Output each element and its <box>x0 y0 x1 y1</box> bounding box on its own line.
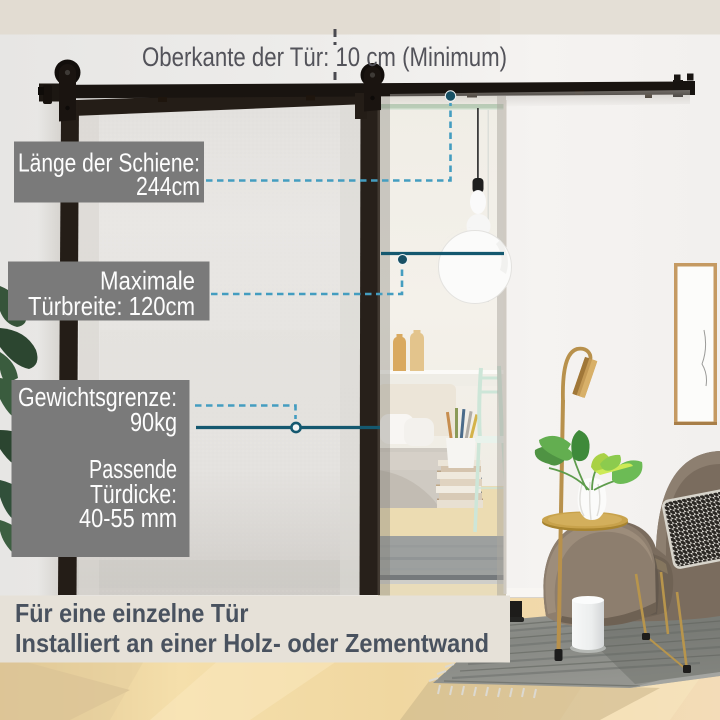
svg-text:90kg: 90kg <box>130 409 177 437</box>
svg-text:Oberkante der Tür: 10 cm (Mini: Oberkante der Tür: 10 cm (Minimum) <box>142 42 507 72</box>
svg-text:Installiert an einer Holz- ode: Installiert an einer Holz- oder Zementwa… <box>15 628 489 658</box>
svg-text:Türbreite: 120cm: Türbreite: 120cm <box>28 291 195 321</box>
svg-text:Passende: Passende <box>89 456 177 484</box>
svg-text:Für eine einzelne Tür: Für eine einzelne Tür <box>15 598 249 628</box>
svg-text:244cm: 244cm <box>136 171 200 201</box>
svg-text:40-55 mm: 40-55 mm <box>79 505 177 533</box>
svg-text:Gewichtsgrenze:: Gewichtsgrenze: <box>18 384 177 412</box>
